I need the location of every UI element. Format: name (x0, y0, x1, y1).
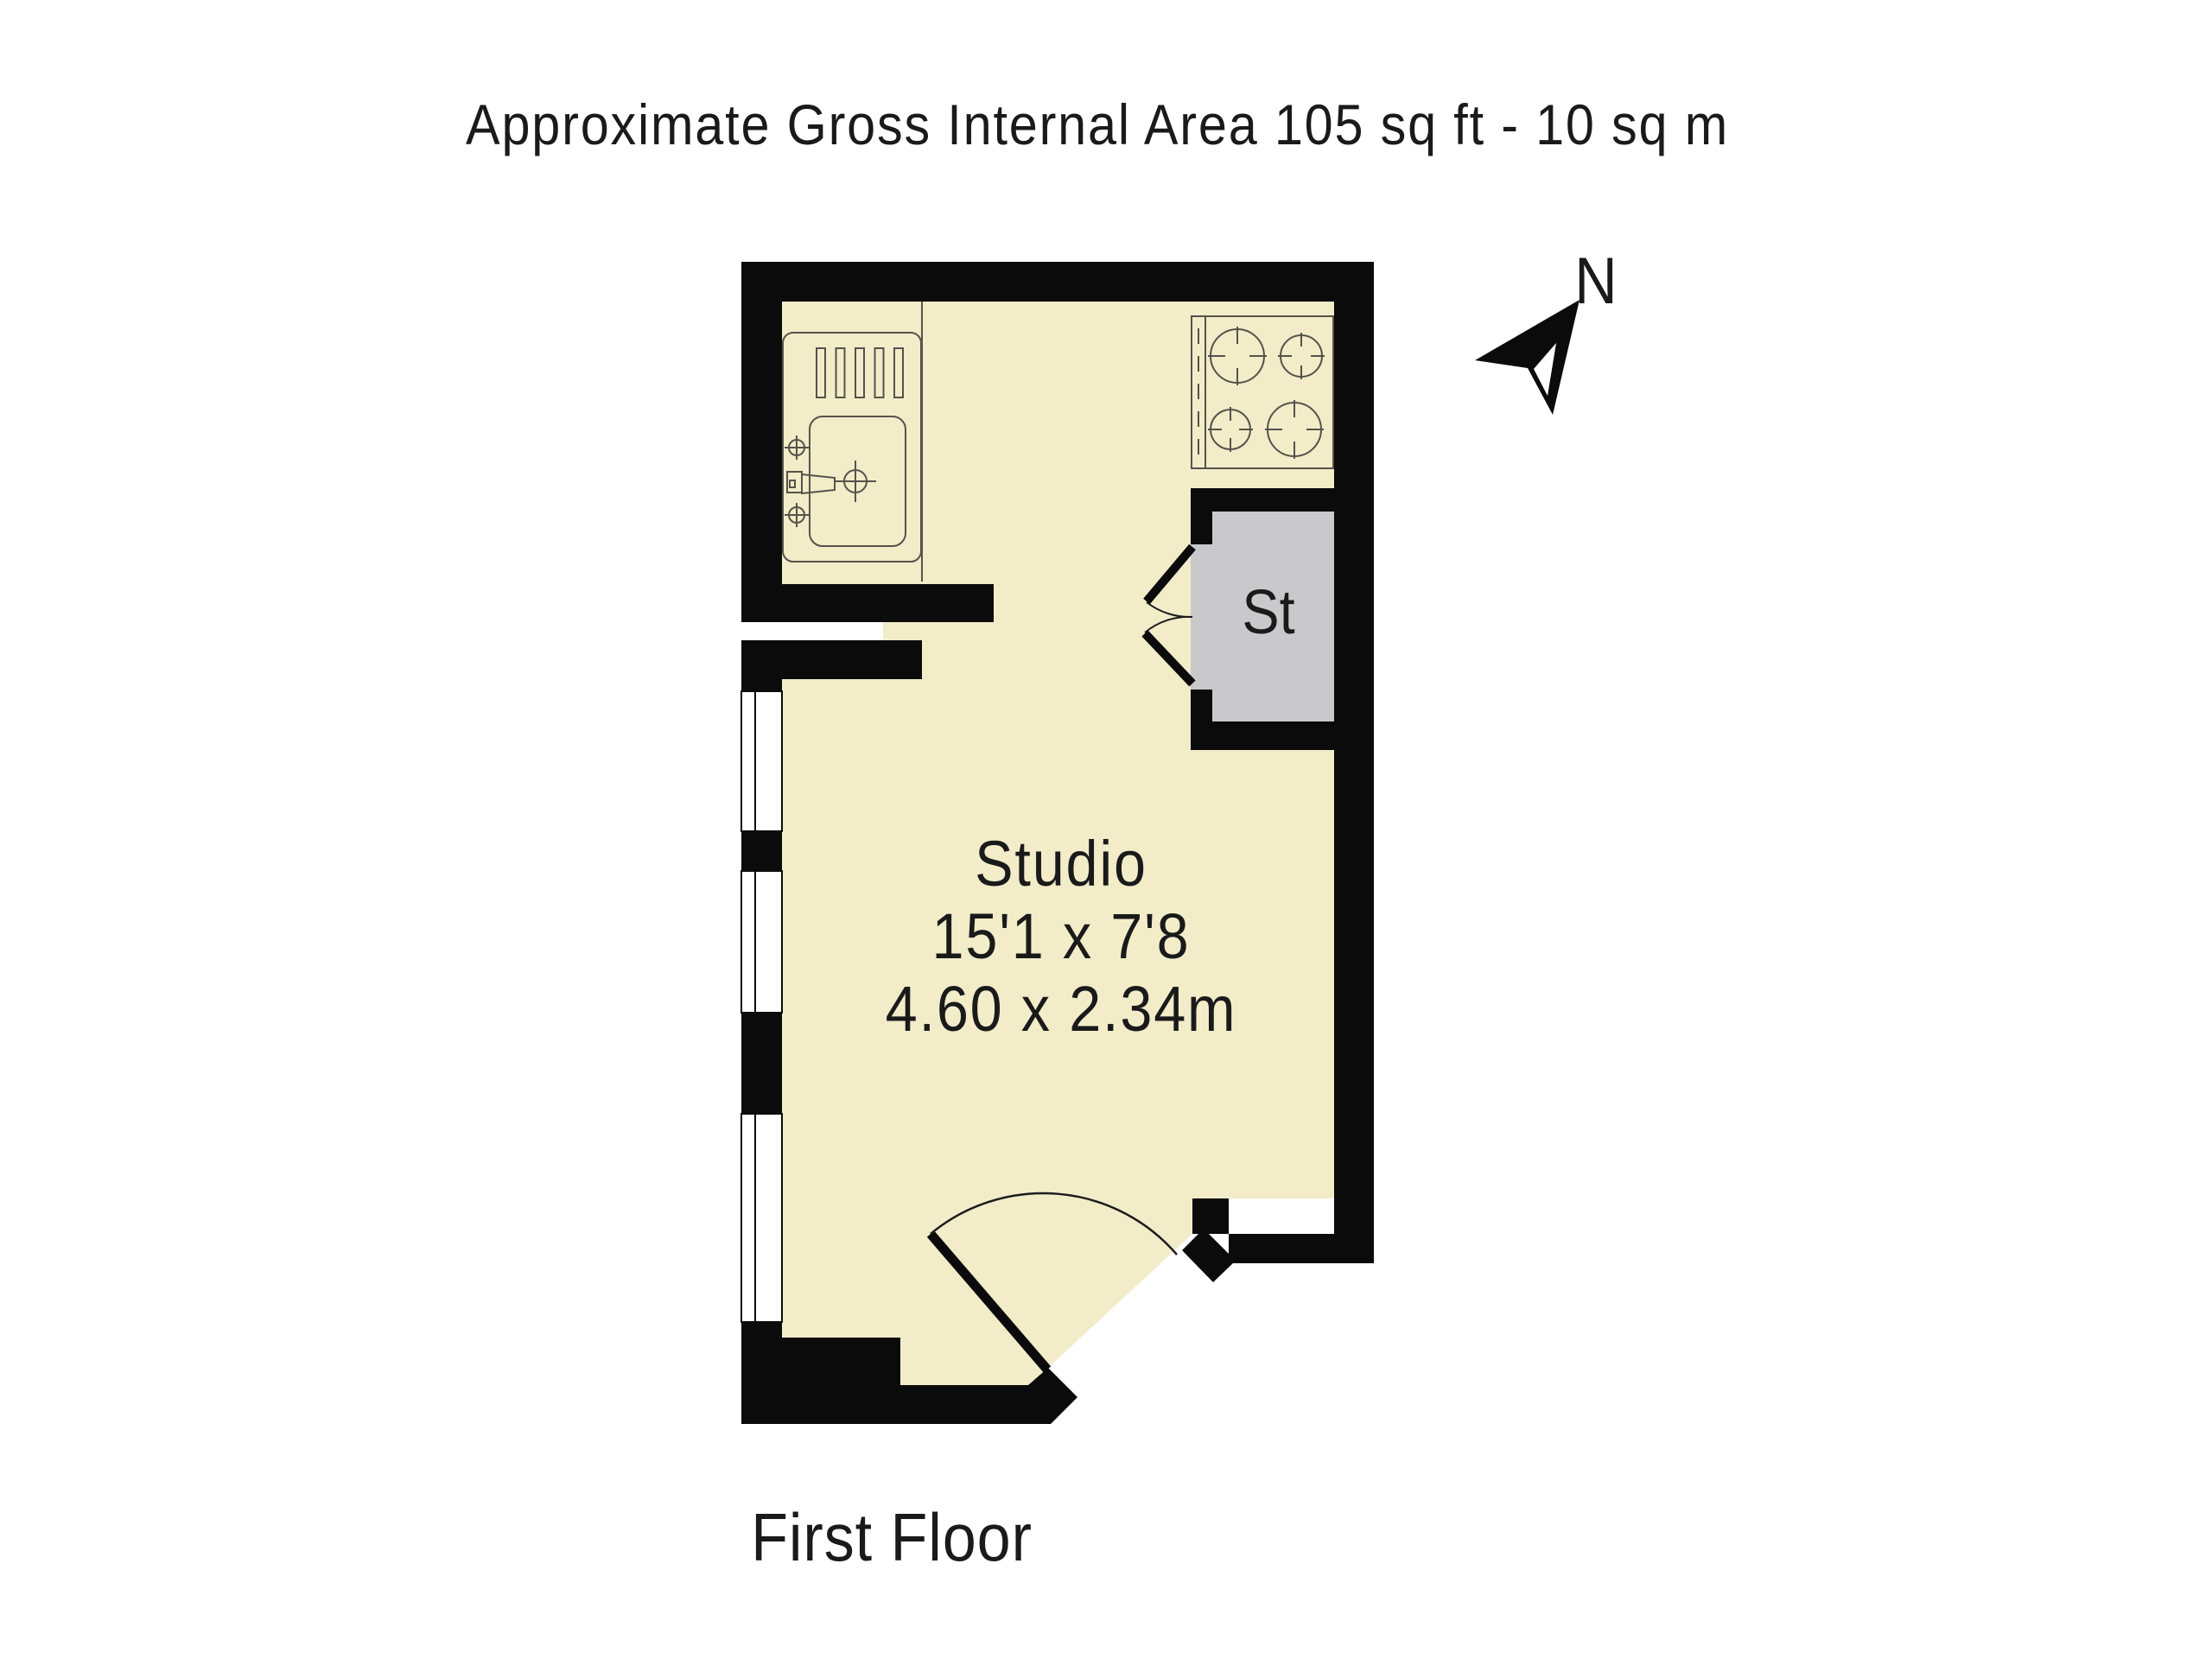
room-label: Studio 15'1 x 7'8 4.60 x 2.34m (886, 828, 1237, 1046)
wall-opening (740, 622, 883, 640)
room-dims-imperial: 15'1 x 7'8 (886, 900, 1237, 973)
window-icon (741, 871, 782, 1013)
windows (741, 691, 782, 1322)
floorplan-page: Approximate Gross Internal Area 105 sq f… (0, 0, 2212, 1659)
window-icon (741, 1114, 782, 1322)
north-label: N (1574, 244, 1617, 319)
room-dims-metric: 4.60 x 2.34m (886, 973, 1237, 1046)
floor-label: First Floor (751, 1498, 1033, 1577)
storage-label: St (1242, 577, 1294, 648)
page-title: Approximate Gross Internal Area 105 sq f… (466, 92, 1729, 157)
north-arrow-icon (1475, 300, 1580, 415)
room-name: Studio (886, 828, 1237, 900)
window-icon (741, 691, 782, 831)
